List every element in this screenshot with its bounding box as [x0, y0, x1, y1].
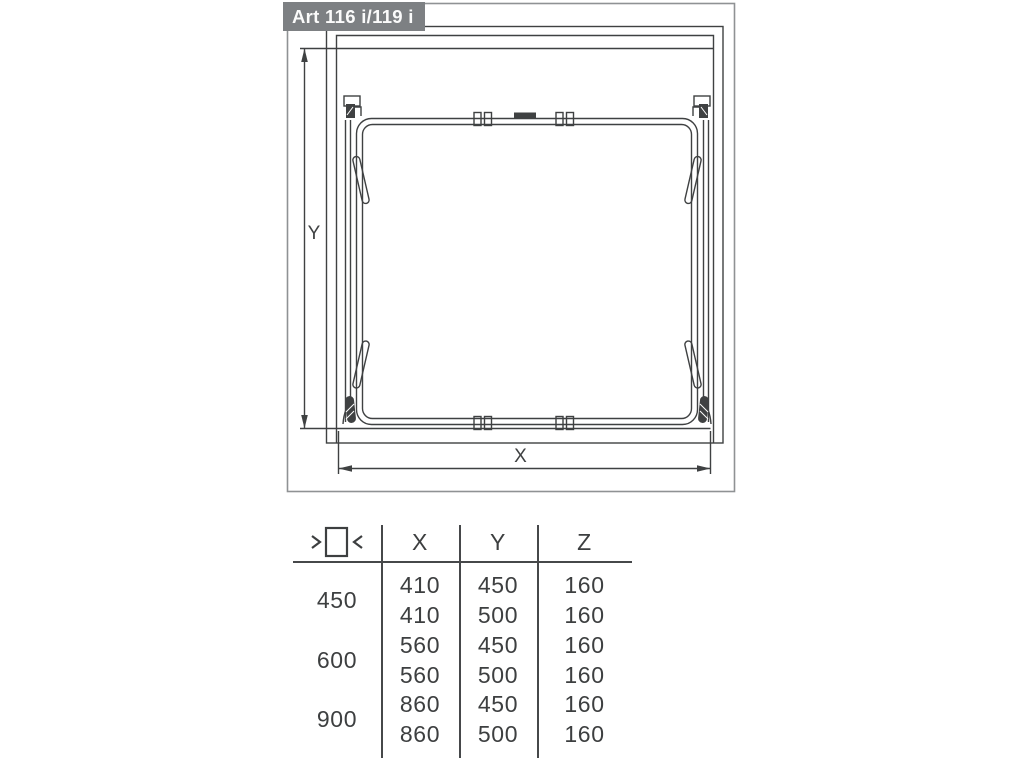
table-divider — [537, 525, 539, 758]
table-cell-y: 450 — [459, 631, 537, 661]
table-cell-x: 410 — [381, 601, 459, 631]
table-cell-x: 860 — [381, 690, 459, 720]
table-cell-y: 500 — [459, 720, 537, 750]
dim-y-label: Y — [308, 223, 321, 244]
table-cell-z: 160 — [537, 690, 632, 720]
arrow-right-icon — [697, 465, 711, 472]
dimension-table: X Y Z 450 410 410 450 500 160 160 — [293, 523, 632, 759]
table-cell-x: 560 — [381, 631, 459, 661]
table-cell-x: 410 — [381, 571, 459, 601]
bottom-rollers — [343, 396, 711, 424]
pullout-frame — [343, 96, 711, 430]
cabinet-size-label: 600 — [293, 631, 381, 691]
cabinet-outline — [300, 27, 723, 444]
table-group-900: 900 860 860 450 500 160 160 — [293, 690, 632, 750]
table-cell-z: 160 — [537, 631, 632, 661]
dim-x-label: X — [514, 446, 527, 467]
table-group-600: 600 560 560 450 500 160 160 — [293, 631, 632, 691]
column-header-y: Y — [459, 529, 537, 556]
table-cell-y: 450 — [459, 571, 537, 601]
cabinet-size-label: 450 — [293, 571, 381, 631]
arrow-up-icon — [301, 49, 308, 63]
table-body: 450 410 410 450 500 160 160 600 560 — [293, 563, 632, 750]
column-header-x: X — [381, 529, 459, 556]
frame-stop-block — [514, 113, 536, 119]
cabinet-width-icon — [293, 526, 381, 558]
table-header-row: X Y Z — [293, 523, 632, 563]
table-cell-z: 160 — [537, 660, 632, 690]
dimension-x: X — [339, 431, 711, 474]
column-header-z: Z — [537, 529, 632, 556]
cabinet-size-label: 900 — [293, 690, 381, 750]
arrow-left-icon — [339, 465, 353, 472]
table-cell-z: 160 — [537, 601, 632, 631]
technical-drawing: Y X — [0, 0, 1024, 512]
rail-clips — [474, 113, 574, 430]
article-title: Art 116 i/119 i — [283, 2, 425, 31]
table-cell-y: 500 — [459, 601, 537, 631]
table-cell-z: 160 — [537, 571, 632, 601]
table-cell-y: 450 — [459, 690, 537, 720]
page: Y X Art 116 i/119 i X Y — [0, 0, 1024, 768]
table-cell-z: 160 — [537, 720, 632, 750]
table-divider — [459, 525, 461, 758]
dimension-y: Y — [301, 49, 320, 429]
table-cell-y: 500 — [459, 660, 537, 690]
table-cell-x: 560 — [381, 660, 459, 690]
table-group-450: 450 410 410 450 500 160 160 — [293, 571, 632, 631]
table-divider — [381, 525, 383, 758]
arrow-down-icon — [301, 415, 308, 429]
table-cell-x: 860 — [381, 720, 459, 750]
